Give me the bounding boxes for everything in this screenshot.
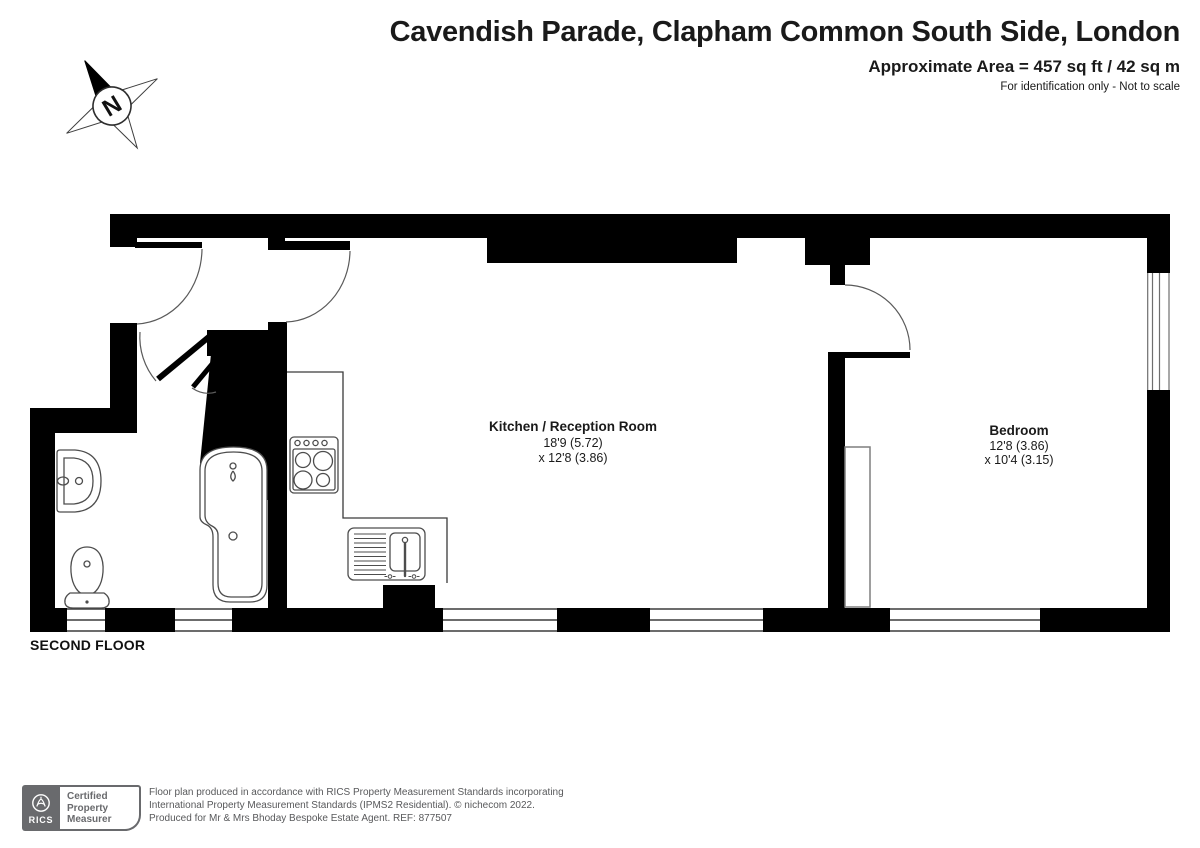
front-door-arc <box>137 249 202 324</box>
kitchen-label: Kitchen / Reception Room 18'9 (5.72) x 1… <box>489 419 657 465</box>
stove <box>290 437 338 493</box>
bedroom-dim-2: x 10'4 (3.15) <box>984 453 1053 467</box>
window-bedroom-east <box>1147 273 1170 390</box>
bedroom-door-arc <box>845 285 910 350</box>
badge-line-1: Certified <box>67 791 139 803</box>
window-bathroom-2 <box>175 608 232 632</box>
badge-line-2: Property <box>67 803 139 815</box>
bedroom-room-name: Bedroom <box>989 423 1048 438</box>
footer-line-1: Floor plan produced in accordance with R… <box>149 786 564 799</box>
rics-lion-icon <box>30 792 52 814</box>
certified-property-measurer-badge: Certified Property Measurer <box>60 785 141 831</box>
bedroom-label: Bedroom 12'8 (3.86) x 10'4 (3.15) <box>984 423 1053 467</box>
kitchen-dim-1: 18'9 (5.72) <box>543 436 602 450</box>
sink <box>57 450 101 512</box>
bathroom-door-arc <box>140 332 156 381</box>
footer: RICS Certified Property Measurer Floor p… <box>22 785 564 831</box>
floorplan-page: Cavendish Parade, Clapham Common South S… <box>0 0 1200 848</box>
wardrobe <box>845 447 870 607</box>
kitchen-dim-2: x 12'8 (3.86) <box>538 451 607 465</box>
floor-label: SECOND FLOOR <box>30 637 145 653</box>
rics-logo: RICS <box>22 785 60 831</box>
rics-wordmark: RICS <box>29 815 54 825</box>
window-kitchen-2 <box>650 608 763 632</box>
footer-line-2: International Property Measurement Stand… <box>149 799 564 812</box>
window-kitchen-1 <box>443 608 557 632</box>
badge-line-3: Measurer <box>67 814 139 826</box>
bedroom-dim-1: 12'8 (3.86) <box>989 439 1048 453</box>
footer-line-3: Produced for Mr & Mrs Bhoday Bespoke Est… <box>149 812 564 825</box>
compass-icon: N <box>39 33 182 175</box>
footer-disclaimer: Floor plan produced in accordance with R… <box>149 785 564 825</box>
window-bedroom-south <box>890 608 1040 632</box>
floorplan-drawing: N <box>0 0 1200 848</box>
bathtub <box>200 447 267 602</box>
toilet <box>65 547 109 608</box>
kitchen-door-arc <box>286 251 350 322</box>
kitchen-room-name: Kitchen / Reception Room <box>489 419 657 434</box>
kitchen-sink-unit <box>348 528 425 580</box>
window-bathroom-1 <box>67 608 105 632</box>
